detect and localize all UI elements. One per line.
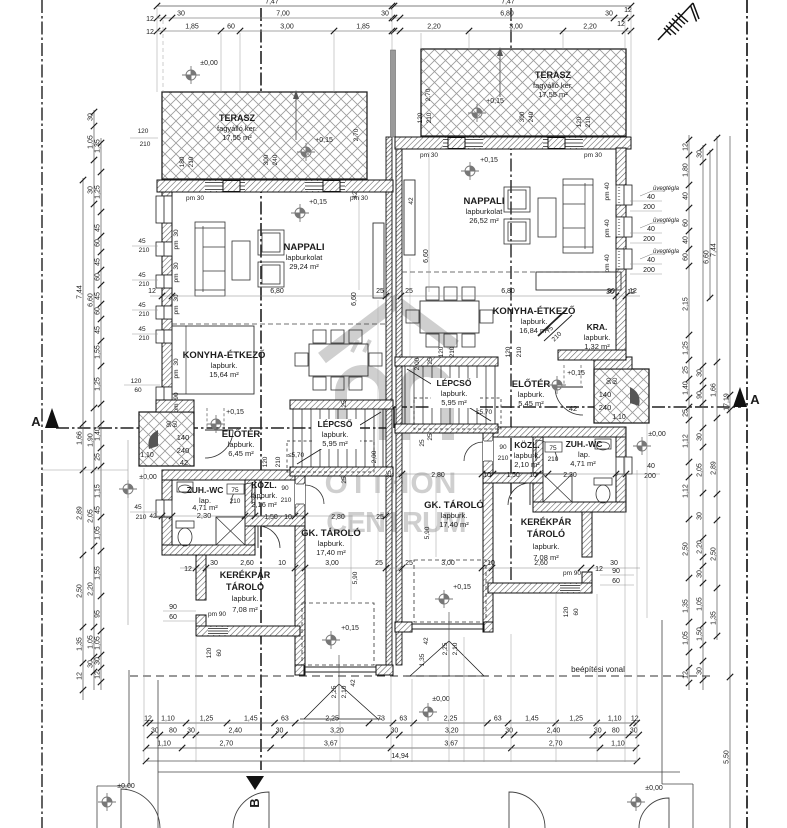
svg-text:2,70: 2,70	[425, 88, 432, 101]
svg-text:3,20: 3,20	[330, 728, 344, 735]
svg-text:1,32 m²: 1,32 m²	[584, 342, 610, 351]
svg-text:30: 30	[173, 262, 180, 270]
svg-text:TÁROLÓ: TÁROLÓ	[226, 581, 264, 592]
svg-text:45: 45	[134, 504, 142, 511]
svg-text:1,55: 1,55	[95, 566, 102, 580]
svg-text:17,40 m²: 17,40 m²	[316, 548, 346, 557]
svg-text:2,40: 2,40	[547, 728, 561, 735]
svg-text:TERASZ: TERASZ	[219, 113, 256, 123]
svg-text:1,90: 1,90	[88, 433, 95, 447]
svg-text:5,95 m²: 5,95 m²	[441, 398, 467, 407]
svg-text:25: 25	[405, 288, 413, 295]
svg-text:KÖZL.: KÖZL.	[514, 440, 540, 450]
svg-text:210: 210	[139, 281, 150, 288]
svg-text:30: 30	[505, 728, 513, 735]
svg-text:+0,15: +0,15	[567, 370, 585, 377]
svg-text:30: 30	[276, 728, 284, 735]
svg-text:80: 80	[612, 728, 620, 735]
svg-text:210: 210	[188, 156, 195, 167]
svg-text:+0,15: +0,15	[309, 199, 327, 206]
svg-text:25: 25	[683, 409, 690, 417]
svg-text:25: 25	[427, 433, 434, 441]
svg-text:3,00: 3,00	[441, 560, 455, 567]
svg-text:240: 240	[528, 111, 535, 122]
svg-text:45: 45	[138, 326, 146, 333]
svg-text:25: 25	[375, 560, 383, 567]
svg-text:60: 60	[134, 387, 142, 394]
svg-text:5,50: 5,50	[724, 750, 731, 764]
svg-text:30: 30	[630, 728, 638, 735]
svg-text:2,30: 2,30	[563, 472, 577, 479]
svg-text:30: 30	[88, 660, 95, 668]
svg-text:210: 210	[281, 497, 292, 504]
svg-text:pm: pm	[604, 263, 611, 272]
svg-text:29,24 m²: 29,24 m²	[289, 262, 319, 271]
svg-text:2,80: 2,80	[431, 472, 445, 479]
svg-text:120: 120	[131, 378, 142, 385]
svg-text:120: 120	[262, 456, 269, 467]
svg-text:1,05: 1,05	[697, 597, 704, 611]
svg-text:240: 240	[272, 154, 279, 165]
svg-text:210: 210	[275, 456, 282, 467]
svg-text:pm: pm	[604, 191, 611, 200]
svg-text:12: 12	[146, 29, 154, 36]
svg-text:42: 42	[569, 404, 577, 413]
svg-text:200: 200	[643, 236, 655, 243]
svg-text:45: 45	[95, 258, 102, 266]
svg-text:5,95 m²: 5,95 m²	[322, 439, 348, 448]
svg-text:12: 12	[184, 566, 192, 573]
svg-text:210: 210	[230, 498, 241, 505]
svg-text:7,44: 7,44	[711, 243, 718, 257]
svg-text:+0,15: +0,15	[341, 625, 359, 632]
svg-text:120: 120	[417, 112, 424, 123]
svg-text:45: 45	[95, 506, 102, 514]
svg-text:6,60: 6,60	[704, 250, 711, 264]
svg-text:42: 42	[408, 197, 415, 205]
svg-text:300: 300	[263, 154, 270, 165]
svg-text:30: 30	[187, 728, 195, 735]
svg-text:6,80: 6,80	[501, 288, 515, 295]
svg-text:7,47: 7,47	[265, 0, 279, 6]
svg-text:60: 60	[173, 420, 179, 427]
svg-text:10: 10	[284, 514, 292, 521]
svg-text:42: 42	[149, 513, 157, 520]
svg-text:60: 60	[169, 614, 177, 621]
svg-text:5,90: 5,90	[352, 571, 359, 584]
svg-text:12: 12	[617, 21, 625, 28]
svg-text:120: 120	[206, 647, 213, 658]
svg-text:1,66: 1,66	[711, 383, 718, 397]
svg-text:30: 30	[173, 294, 180, 302]
svg-text:1,25: 1,25	[200, 716, 214, 723]
svg-text:lapburk.: lapburk.	[514, 451, 541, 460]
svg-text:1,40: 1,40	[683, 381, 690, 395]
svg-text:±0,00: ±0,00	[139, 474, 157, 481]
svg-text:2,50: 2,50	[711, 547, 718, 561]
svg-text:ELŐTÉR: ELŐTÉR	[512, 378, 551, 390]
svg-text:ZUH.-WC: ZUH.-WC	[187, 485, 224, 495]
svg-text:7,00: 7,00	[276, 11, 290, 18]
svg-text:30: 30	[605, 11, 613, 18]
svg-text:42: 42	[423, 637, 430, 645]
svg-text:16,84 m²: 16,84 m²	[519, 326, 549, 335]
svg-text:3,67: 3,67	[444, 741, 458, 748]
svg-text:45: 45	[138, 238, 146, 245]
svg-text:120: 120	[576, 116, 583, 127]
svg-text:KERÉKPÁR: KERÉKPÁR	[521, 517, 572, 527]
svg-text:±0,00: ±0,00	[117, 783, 135, 790]
svg-text:2,25: 2,25	[325, 716, 339, 723]
svg-text:25: 25	[386, 470, 393, 478]
svg-text:200: 200	[643, 267, 655, 274]
svg-text:lapburk.: lapburk.	[584, 333, 611, 342]
svg-text:A: A	[750, 392, 760, 407]
svg-text:1,40: 1,40	[95, 427, 102, 441]
svg-text:NAPPALI: NAPPALI	[284, 242, 325, 253]
svg-text:60: 60	[216, 649, 223, 657]
svg-text:210: 210	[139, 311, 150, 318]
svg-text:pm 30: pm 30	[186, 195, 204, 202]
svg-text:90: 90	[281, 485, 289, 492]
svg-text:2,20: 2,20	[427, 24, 441, 31]
svg-text:2,25: 2,25	[444, 716, 458, 723]
svg-text:30: 30	[88, 186, 95, 194]
svg-text:6,80: 6,80	[270, 288, 284, 295]
svg-text:60: 60	[95, 273, 102, 281]
svg-text:2,70: 2,70	[549, 741, 563, 748]
svg-text:lapburk.: lapburk.	[228, 440, 255, 449]
svg-text:pm 90: pm 90	[208, 611, 226, 618]
svg-text:30: 30	[610, 560, 618, 567]
svg-text:17,40 m²: 17,40 m²	[439, 520, 469, 529]
svg-text:2,25: 2,25	[331, 685, 338, 698]
svg-text:7,44: 7,44	[77, 285, 84, 299]
svg-text:73: 73	[377, 716, 385, 723]
svg-text:KÖZL.: KÖZL.	[251, 480, 277, 490]
svg-text:30: 30	[697, 512, 704, 520]
svg-text:6,60: 6,60	[88, 293, 95, 307]
svg-text:75: 75	[231, 487, 239, 494]
svg-text:90: 90	[169, 604, 177, 611]
svg-text:1,10: 1,10	[608, 716, 622, 723]
svg-text:±0,00: ±0,00	[645, 785, 663, 792]
svg-text:30: 30	[173, 229, 180, 237]
svg-text:2,60: 2,60	[240, 560, 254, 567]
svg-text:2,20: 2,20	[697, 540, 704, 554]
svg-text:3,00: 3,00	[280, 24, 294, 31]
svg-text:TERASZ: TERASZ	[535, 70, 572, 80]
svg-text:30: 30	[697, 150, 704, 158]
svg-text:1,05: 1,05	[95, 636, 102, 650]
svg-text:90: 90	[697, 391, 704, 399]
svg-text:30: 30	[173, 358, 180, 366]
svg-text:LÉPCSŐ: LÉPCSŐ	[318, 418, 353, 429]
svg-text:40: 40	[647, 257, 655, 264]
svg-text:1,45: 1,45	[525, 716, 539, 723]
svg-text:+0,15: +0,15	[480, 157, 498, 164]
svg-text:25: 25	[683, 366, 690, 374]
svg-text:14,94: 14,94	[391, 753, 409, 760]
svg-text:1,35: 1,35	[419, 653, 426, 666]
svg-text:lapburk.: lapburk.	[232, 594, 259, 603]
svg-text:25: 25	[95, 453, 102, 461]
svg-text:17,19: 17,19	[724, 393, 731, 411]
svg-text:25: 25	[405, 560, 413, 567]
svg-text:A: A	[31, 414, 41, 429]
svg-text:12: 12	[144, 716, 152, 723]
svg-text:30: 30	[381, 11, 389, 18]
svg-text:1,66: 1,66	[77, 431, 84, 445]
svg-text:fagyálló ker.: fagyálló ker.	[533, 81, 573, 90]
svg-text:30: 30	[697, 433, 704, 441]
svg-text:120: 120	[563, 606, 570, 617]
svg-text:1,35: 1,35	[77, 637, 84, 651]
svg-text:1,05: 1,05	[95, 526, 102, 540]
svg-text:12: 12	[631, 716, 639, 723]
svg-text:1,10: 1,10	[140, 452, 154, 459]
svg-text:lap.: lap.	[578, 450, 590, 459]
svg-text:lapburk.: lapburk.	[521, 317, 548, 326]
svg-text:1,12: 1,12	[683, 434, 690, 448]
svg-text:200: 200	[644, 473, 656, 480]
svg-text:63: 63	[399, 716, 407, 723]
svg-text:40: 40	[683, 236, 690, 244]
svg-text:45: 45	[95, 292, 102, 300]
svg-text:7,47: 7,47	[501, 0, 515, 6]
svg-text:240: 240	[599, 403, 612, 412]
svg-text:25: 25	[427, 357, 434, 365]
svg-text:1,35: 1,35	[711, 611, 718, 625]
svg-text:≤5,70: ≤5,70	[476, 409, 493, 416]
svg-text:+0,15: +0,15	[486, 98, 504, 105]
svg-text:2,80: 2,80	[331, 514, 345, 521]
svg-text:80: 80	[169, 728, 177, 735]
svg-text:2,25: 2,25	[442, 642, 449, 655]
svg-text:30: 30	[697, 369, 704, 377]
svg-text:6,80: 6,80	[500, 11, 514, 18]
svg-text:210: 210	[585, 116, 592, 127]
svg-text:lapburkolat: lapburkolat	[466, 207, 504, 216]
svg-text:300: 300	[519, 111, 526, 122]
svg-text:10: 10	[483, 472, 491, 479]
svg-text:1,12: 1,12	[683, 484, 690, 498]
svg-text:40: 40	[604, 219, 611, 227]
svg-text:63: 63	[494, 716, 502, 723]
svg-text:210: 210	[548, 456, 559, 463]
svg-text:5,90: 5,90	[424, 526, 431, 539]
svg-text:4,71 m²: 4,71 m²	[570, 459, 596, 468]
svg-text:45: 45	[138, 302, 146, 309]
svg-text:45: 45	[95, 326, 102, 334]
svg-text:2,05: 2,05	[697, 463, 704, 477]
svg-text:25: 25	[341, 400, 348, 408]
svg-text:90: 90	[499, 444, 507, 451]
svg-text:60: 60	[613, 377, 619, 384]
svg-text:pm 30: pm 30	[420, 152, 438, 159]
svg-text:1,50: 1,50	[264, 514, 278, 521]
svg-text:25: 25	[419, 439, 426, 447]
svg-text:1,85: 1,85	[356, 24, 370, 31]
svg-text:2,70: 2,70	[220, 741, 234, 748]
svg-text:lapburk.: lapburk.	[322, 430, 349, 439]
svg-text:2,20: 2,20	[583, 24, 597, 31]
svg-text:120: 120	[138, 128, 149, 135]
svg-text:210: 210	[516, 346, 523, 357]
svg-text:40: 40	[647, 226, 655, 233]
svg-text:210: 210	[139, 335, 150, 342]
svg-text:2,60: 2,60	[534, 560, 548, 567]
svg-text:63: 63	[281, 716, 289, 723]
svg-text:42: 42	[180, 458, 188, 467]
svg-text:NAPPALI: NAPPALI	[464, 196, 505, 207]
svg-text:12: 12	[95, 671, 102, 679]
svg-text:30: 30	[697, 570, 704, 578]
svg-text:210: 210	[139, 247, 150, 254]
svg-text:45: 45	[138, 272, 146, 279]
svg-text:95: 95	[95, 610, 102, 618]
svg-text:KONYHA-ÉTKEZŐ: KONYHA-ÉTKEZŐ	[183, 349, 266, 361]
svg-text:KONYHA-ÉTKEZŐ: KONYHA-ÉTKEZŐ	[493, 305, 576, 317]
svg-text:2,10: 2,10	[452, 642, 459, 655]
svg-text:15,64 m²: 15,64 m²	[209, 370, 239, 379]
svg-text:2,20: 2,20	[88, 582, 95, 596]
svg-text:12: 12	[146, 16, 154, 23]
svg-text:60: 60	[227, 24, 235, 31]
svg-text:10: 10	[487, 560, 495, 567]
svg-text:12: 12	[148, 288, 156, 295]
svg-text:30: 30	[88, 113, 95, 121]
svg-text:26,52 m²: 26,52 m²	[469, 216, 499, 225]
svg-text:40: 40	[604, 182, 611, 190]
svg-text:200: 200	[643, 204, 655, 211]
svg-text:1,55: 1,55	[95, 345, 102, 359]
svg-text:1,35: 1,35	[683, 599, 690, 613]
svg-text:lapburkolat: lapburkolat	[286, 253, 324, 262]
svg-text:12: 12	[683, 671, 690, 679]
svg-text:2,40: 2,40	[228, 728, 242, 735]
svg-text:1,50: 1,50	[697, 627, 704, 641]
svg-text:1,05: 1,05	[88, 135, 95, 149]
svg-text:17,55 m²: 17,55 m²	[222, 133, 252, 142]
svg-text:75: 75	[549, 445, 557, 452]
svg-text:210: 210	[449, 346, 456, 357]
svg-text:2,50: 2,50	[683, 542, 690, 556]
svg-text:6,45 m²: 6,45 m²	[228, 449, 254, 458]
svg-text:2,70: 2,70	[353, 128, 360, 141]
svg-text:beépítési vonal: beépítési vonal	[571, 665, 625, 674]
svg-text:KERÉKPÁR: KERÉKPÁR	[220, 570, 271, 580]
svg-text:7,08 m²: 7,08 m²	[232, 605, 258, 614]
svg-text:1,35: 1,35	[95, 139, 102, 153]
svg-text:1,10: 1,10	[612, 414, 626, 421]
svg-text:40: 40	[683, 192, 690, 200]
svg-text:GK. TÁROLÓ: GK. TÁROLÓ	[424, 499, 484, 511]
svg-text:1,05: 1,05	[88, 635, 95, 649]
svg-text:TÁROLÓ: TÁROLÓ	[527, 528, 565, 539]
svg-text:+0,15: +0,15	[315, 137, 333, 144]
svg-text:3,00: 3,00	[509, 24, 523, 31]
svg-text:1,85: 1,85	[185, 24, 199, 31]
svg-text:lapburk.: lapburk.	[441, 389, 468, 398]
svg-text:lapburk.: lapburk.	[211, 361, 238, 370]
svg-text:40: 40	[647, 194, 655, 201]
svg-text:1,80: 1,80	[683, 163, 690, 177]
svg-text:210: 210	[136, 514, 147, 521]
svg-text:pm: pm	[173, 369, 180, 378]
svg-text:60: 60	[95, 307, 102, 315]
svg-text:30: 30	[390, 728, 398, 735]
svg-text:30: 30	[177, 11, 185, 18]
svg-text:1,25: 1,25	[683, 341, 690, 355]
svg-text:140: 140	[599, 390, 612, 399]
svg-text:60: 60	[683, 253, 690, 261]
svg-text:lapburk.: lapburk.	[518, 390, 545, 399]
svg-text:120: 120	[505, 346, 512, 357]
svg-text:240: 240	[177, 446, 190, 455]
svg-text:2,16 m²: 2,16 m²	[251, 500, 277, 509]
svg-text:60: 60	[612, 578, 620, 585]
svg-text:+0,15: +0,15	[453, 584, 471, 591]
svg-text:10: 10	[529, 472, 537, 479]
svg-text:B: B	[247, 798, 262, 807]
svg-text:2,89: 2,89	[711, 461, 718, 475]
svg-text:25: 25	[376, 514, 384, 521]
svg-text:fagyálló ker.: fagyálló ker.	[217, 124, 257, 133]
svg-text:2,00: 2,00	[371, 450, 378, 463]
svg-text:lapburk.: lapburk.	[318, 539, 345, 548]
svg-text:40: 40	[647, 463, 655, 470]
svg-text:2,10: 2,10	[341, 685, 348, 698]
svg-text:180: 180	[179, 156, 186, 167]
svg-text:210: 210	[140, 141, 151, 148]
svg-text:pm 90: pm 90	[563, 570, 581, 577]
svg-text:2,15: 2,15	[683, 297, 690, 311]
svg-text:pm 30: pm 30	[350, 195, 368, 202]
svg-text:30: 30	[697, 667, 704, 675]
svg-text:1,50: 1,50	[506, 472, 520, 479]
svg-text:KRA.: KRA.	[587, 322, 608, 332]
svg-text:2,10 m²: 2,10 m²	[514, 460, 540, 469]
svg-text:1,05: 1,05	[683, 631, 690, 645]
svg-text:2,05: 2,05	[88, 509, 95, 523]
svg-text:≤5,70: ≤5,70	[288, 452, 305, 459]
svg-text:90: 90	[173, 392, 180, 400]
svg-text:1,25: 1,25	[569, 716, 583, 723]
svg-text:60: 60	[683, 219, 690, 227]
svg-text:lapburk.: lapburk.	[251, 491, 278, 500]
svg-text:3,20: 3,20	[445, 728, 459, 735]
svg-text:12: 12	[77, 672, 84, 680]
svg-text:lapburk.: lapburk.	[533, 542, 560, 551]
svg-text:ZUH.-WC: ZUH.-WC	[566, 439, 603, 449]
svg-text:2,89: 2,89	[77, 506, 84, 520]
svg-text:12: 12	[629, 288, 637, 295]
svg-text:1,45: 1,45	[244, 716, 258, 723]
svg-text:120: 120	[438, 346, 445, 357]
svg-text:3,67: 3,67	[324, 741, 338, 748]
svg-text:210: 210	[426, 112, 433, 123]
svg-text:10: 10	[278, 560, 286, 567]
svg-text:ELŐTÉR: ELŐTÉR	[222, 428, 261, 440]
svg-text:210: 210	[498, 455, 509, 462]
svg-text:pm: pm	[173, 403, 180, 412]
svg-text:2,30: 2,30	[197, 511, 212, 520]
svg-text:45: 45	[95, 224, 102, 232]
svg-text:1,25: 1,25	[95, 377, 102, 391]
svg-text:1,10: 1,10	[157, 741, 171, 748]
svg-text:25: 25	[341, 476, 348, 484]
